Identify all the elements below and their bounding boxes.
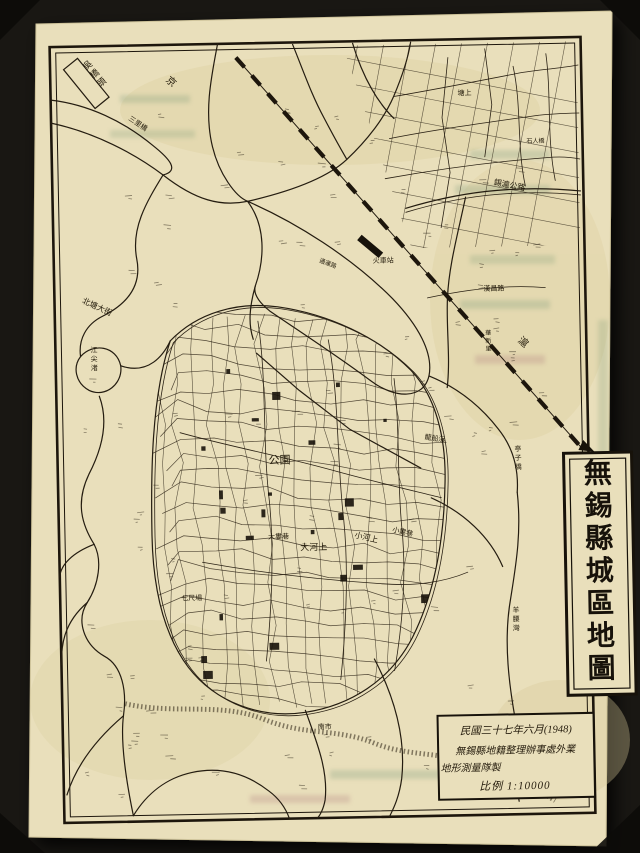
building-block — [252, 418, 259, 421]
building-block — [345, 498, 354, 506]
map-scale: 比例 1:10000 — [479, 779, 551, 793]
map-label: 塘上 — [457, 88, 471, 97]
photographed-map-backdrop: 無錫縣城區地圖 民國三十七年六月(1948) 無錫縣地籍整理辦事處外業 地形測量… — [0, 0, 640, 853]
map-label: 華新里 — [485, 329, 491, 353]
building-block — [383, 419, 386, 422]
info-date-line: 民國三十七年六月(1948) — [460, 723, 573, 737]
building-block — [272, 392, 280, 400]
building-block — [226, 369, 230, 374]
map-label: 七尺場 — [181, 593, 202, 602]
map-label: 公園 — [268, 454, 290, 467]
map-label: 石人橋 — [526, 137, 544, 145]
map-label: 漢昌路 — [483, 283, 504, 292]
building-block — [246, 536, 254, 540]
building-block — [353, 565, 363, 570]
map-title-char: 圖 — [587, 653, 616, 685]
building-block — [219, 614, 223, 620]
building-block — [338, 513, 343, 520]
map-label: 南市 — [318, 722, 332, 731]
map-label: 亭子橋 — [514, 444, 522, 471]
title-box: 無錫縣城區地圖 — [563, 452, 636, 695]
map-title-char: 區 — [586, 588, 615, 620]
info-agency-line: 無錫縣地籍整理辦事處外業 — [455, 743, 577, 757]
building-block — [203, 671, 213, 679]
map-title-char: 地 — [587, 620, 616, 653]
map-title-char: 無 — [584, 457, 613, 490]
map-label: 江尖渚 — [90, 346, 97, 372]
info-box: 民國三十七年六月(1948) 無錫縣地籍整理辦事處外業 地形測量隊製 比例 1:… — [438, 713, 596, 800]
building-block — [311, 530, 315, 534]
info-team-line: 地形測量隊製 — [440, 762, 501, 775]
wuxi-city-map-image: 無錫縣城區地圖 民國三十七年六月(1948) 無錫縣地籍整理辦事處外業 地形測量… — [0, 0, 640, 853]
building-block — [201, 446, 205, 450]
map-label: 大婁巷 — [268, 532, 289, 541]
building-block — [268, 492, 272, 495]
building-block — [269, 643, 279, 650]
map-title-char: 錫 — [584, 489, 613, 523]
building-block — [340, 575, 347, 582]
map-label: 火車站 — [373, 256, 394, 265]
building-block — [201, 656, 207, 663]
building-block — [336, 383, 340, 388]
map-label: 大河上 — [300, 541, 327, 554]
building-block — [219, 490, 223, 499]
map-label: 羊腰灣 — [512, 605, 520, 632]
map-title-char: 城 — [585, 555, 614, 588]
building-block — [220, 508, 225, 514]
building-block — [261, 509, 265, 517]
building-block — [308, 440, 315, 445]
map-title: 無錫縣城區地圖 — [584, 457, 616, 684]
map-title-char: 縣 — [585, 522, 614, 555]
